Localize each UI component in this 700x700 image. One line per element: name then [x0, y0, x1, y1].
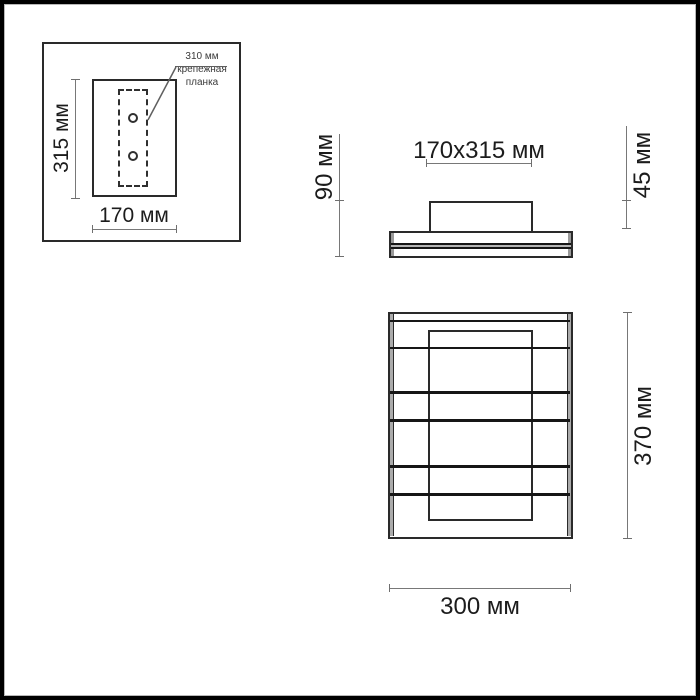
dimension-tick	[92, 225, 93, 233]
inset-width-dimension-label: 170 мм	[79, 204, 189, 228]
callout-leader-line	[142, 62, 182, 124]
dimension-tick	[71, 198, 80, 199]
front-view-height-label: 370 мм	[630, 386, 658, 466]
inset-height-dimension-line	[75, 79, 76, 199]
dimension-tick	[623, 538, 632, 539]
dimension-tick	[623, 312, 632, 313]
dimension-tick	[622, 200, 631, 201]
mounting-hole-top	[128, 113, 138, 123]
dimension-diagram: 315 мм 170 мм 310 мм крепежная планка 17…	[0, 0, 700, 700]
front-view-slat-line-3	[390, 419, 570, 422]
front-view-slat-line-1	[390, 347, 570, 349]
dimension-tick	[622, 228, 631, 229]
side-view-total-height-label: 90 мм	[311, 134, 339, 200]
side-view-total-height-dimension-line	[339, 134, 340, 257]
dimension-tick	[531, 159, 532, 167]
plate-size-dimension-line	[426, 163, 532, 164]
dimension-tick	[335, 256, 344, 257]
mounting-hole-bottom	[128, 151, 138, 161]
dimension-tick	[426, 159, 427, 167]
inset-height-dimension-label: 315 мм	[50, 103, 74, 173]
dimension-tick	[570, 584, 571, 592]
front-view-slat-line-4	[390, 465, 570, 468]
side-view-box-height-dimension-line	[626, 126, 627, 229]
dimension-tick	[71, 79, 80, 80]
dimension-tick	[389, 584, 390, 592]
front-view-top-band-line	[390, 320, 570, 322]
front-view-slat-line-2	[390, 391, 570, 394]
front-view-height-dimension-line	[627, 312, 628, 539]
side-view-groove-stripe	[391, 243, 571, 249]
side-view-box-height-label: 45 мм	[629, 132, 657, 198]
front-view-width-label: 300 мм	[380, 593, 580, 621]
front-view-width-dimension-line	[389, 588, 571, 589]
dimension-tick	[176, 225, 177, 233]
inset-width-dimension-line	[92, 229, 177, 230]
callout-underline	[175, 66, 227, 67]
front-view-slat-line-5	[390, 493, 570, 496]
side-view-mounting-box	[429, 201, 533, 233]
